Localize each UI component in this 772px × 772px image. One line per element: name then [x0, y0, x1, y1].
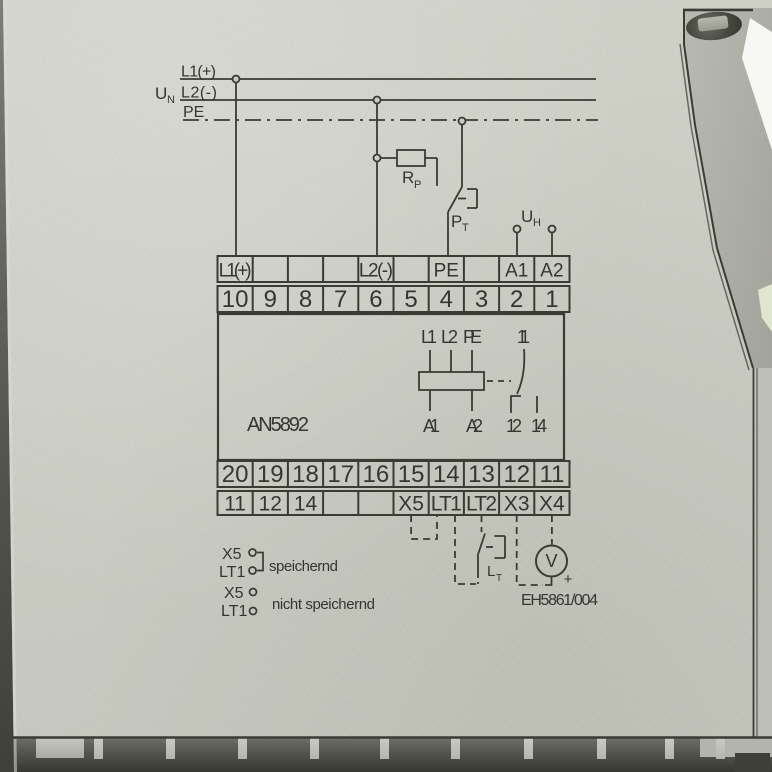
- polarity-sign: +: [564, 571, 573, 588]
- label-rp: R: [402, 168, 414, 187]
- face-channel-boundary: [684, 11, 753, 368]
- uh-wires: [517, 233, 552, 257]
- legend-jumper-bracket: [257, 553, 263, 571]
- legend-text-latching: speichernd: [269, 558, 338, 575]
- relay-terminal: A2: [466, 416, 483, 436]
- relay-terminal: 11: [517, 327, 530, 347]
- legend-terminal-dot: [250, 608, 257, 615]
- label-lt: L: [487, 563, 495, 580]
- relay-terminal: L1: [421, 327, 437, 347]
- legend-terminal-dot: [250, 589, 257, 596]
- voltmeter-bottom-lead: [545, 577, 552, 585]
- resistor-rp-symbol: [397, 150, 425, 166]
- terminal-number: 19: [257, 461, 284, 488]
- drawing-number: EH5861/004: [521, 592, 598, 609]
- wire-x3-voltmeter: [517, 515, 543, 585]
- type-label: AN5892: [247, 414, 309, 436]
- terminal-number: 6: [369, 286, 382, 313]
- relay-outline: [218, 314, 564, 460]
- relay-terminal: 14: [531, 416, 547, 436]
- terminal-number: 13: [468, 461, 495, 488]
- terminal-label: L1(+): [219, 261, 252, 282]
- label-un: U: [155, 84, 167, 103]
- label-un-sub: N: [167, 94, 175, 106]
- terminal-label: 12: [259, 493, 282, 516]
- uh-terminal-a1: [514, 226, 521, 233]
- terminal-number: 17: [327, 461, 354, 488]
- terminal-number: 5: [404, 286, 417, 313]
- terminal-number: 10: [222, 286, 249, 313]
- wire-rp-right: [425, 158, 437, 186]
- coil-top-leads: [430, 350, 472, 372]
- terminal-label: A1: [505, 261, 528, 282]
- lt-actuator: [495, 536, 506, 558]
- terminal-label: 11: [224, 493, 246, 516]
- label-rp-sub: P: [414, 179, 421, 191]
- relay-terminal: A1: [423, 416, 440, 436]
- lt-contact: [478, 534, 486, 573]
- terminal-label: LT2: [466, 493, 497, 516]
- terminal-label: PE: [434, 261, 459, 282]
- jumper-x5-lt1: [411, 515, 437, 539]
- terminal-number: 2: [510, 286, 523, 313]
- coil-symbol: [419, 372, 484, 390]
- label-uh: U: [521, 207, 533, 226]
- wiring-diagram: L1(+) L2(-) PE U N R P P T U H L1(+) L2: [0, 0, 772, 772]
- terminal-number: 14: [433, 461, 460, 488]
- terminal-label: LT1: [431, 493, 462, 516]
- wire-lt1-loop: [455, 515, 476, 584]
- legend: X5 LT1 speichernd X5 LT1 nicht speichern…: [219, 546, 375, 620]
- relay-terminal: L2: [441, 327, 458, 347]
- contact-arm-11: [517, 349, 524, 394]
- terminal-number: 18: [292, 461, 319, 488]
- terminal-label: 14: [294, 493, 318, 516]
- label-pt: P: [451, 212, 462, 231]
- terminal-number: 12: [503, 461, 530, 488]
- terminal-label: A2: [540, 261, 563, 282]
- terminal-number: 1: [545, 286, 558, 313]
- legend-text-nonlatching: nicht speichernd: [272, 596, 375, 613]
- relay-terminal: 12: [506, 416, 522, 436]
- legend-x5: X5: [224, 585, 244, 602]
- terminal-number: 20: [222, 461, 249, 488]
- label-uh-sub: H: [533, 217, 541, 229]
- terminal-number: 11: [539, 461, 564, 488]
- terminal-number: 9: [264, 286, 277, 313]
- legend-terminal-dot: [249, 549, 256, 556]
- terminal-number: 16: [363, 461, 390, 488]
- terminal-number: 8: [299, 286, 312, 313]
- relay-internals: [419, 349, 537, 413]
- contact-12: [511, 396, 521, 413]
- legend-terminal-dot: [249, 567, 256, 574]
- legend-lt1: LT1: [221, 603, 247, 620]
- legend-lt1: LT1: [219, 564, 245, 581]
- terminal-label: X3: [504, 493, 530, 516]
- coil-bottom-leads: [430, 390, 472, 411]
- label-l1: L1(+): [181, 64, 216, 81]
- label-l2: L2(-): [181, 85, 217, 102]
- voltmeter-letter: V: [545, 551, 557, 571]
- junction-l1: [233, 76, 240, 83]
- pt-actuator: [467, 189, 477, 208]
- pt-branch: [448, 125, 477, 257]
- junction-l2: [374, 97, 381, 104]
- uh-terminal-a2: [549, 226, 556, 233]
- cell-dividers: [253, 286, 535, 312]
- relay-body: [218, 314, 564, 460]
- terminal-number: 15: [398, 461, 425, 488]
- label-lt-sub: T: [496, 573, 502, 584]
- relay-terminal: PE: [463, 327, 482, 347]
- terminal-label: L2(-): [359, 261, 393, 282]
- junction-rp: [374, 155, 381, 162]
- legend-x5: X5: [222, 546, 242, 563]
- terminal-number: 7: [334, 286, 347, 313]
- label-pe: PE: [183, 104, 204, 121]
- terminal-number: 4: [440, 286, 453, 313]
- junction-pe: [459, 118, 466, 125]
- label-pt-sub: T: [462, 222, 469, 234]
- cell-dividers: [253, 256, 535, 282]
- terminal-label: X4: [539, 493, 565, 516]
- uh-branch: [514, 226, 556, 257]
- terminal-number: 3: [475, 286, 488, 313]
- terminal-label: X5: [398, 493, 424, 516]
